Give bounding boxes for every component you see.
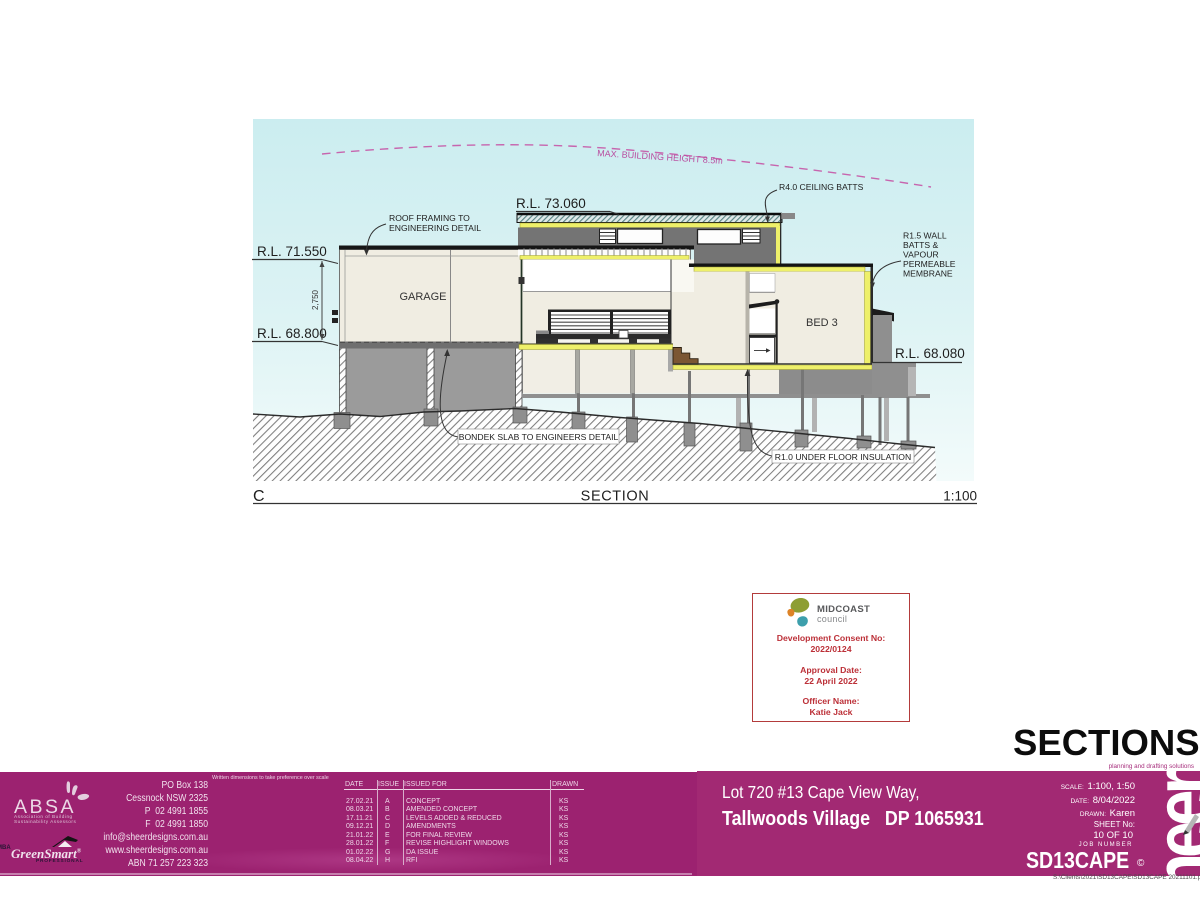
svg-text:R.L. 71.550: R.L. 71.550 — [257, 244, 327, 259]
svg-text:ROOF FRAMING TO: ROOF FRAMING TO — [389, 213, 470, 223]
svg-text:R1.5 WALL: R1.5 WALL — [903, 231, 947, 241]
svg-text:2,750: 2,750 — [311, 289, 320, 310]
svg-text:ENGINEERING DETAIL: ENGINEERING DETAIL — [389, 223, 481, 233]
svg-text:R.L. 68.800: R.L. 68.800 — [257, 326, 327, 341]
svg-text:1:100: 1:100 — [943, 489, 977, 504]
svg-text:SECTION: SECTION — [581, 489, 650, 505]
svg-text:R.L. 73.060: R.L. 73.060 — [516, 196, 586, 211]
svg-text:PERMEABLE: PERMEABLE — [903, 259, 956, 269]
svg-text:MEMBRANE: MEMBRANE — [903, 269, 953, 279]
svg-text:BONDEK SLAB TO ENGINEERS DETAI: BONDEK SLAB TO ENGINEERS DETAIL — [459, 432, 619, 442]
svg-text:BED 3: BED 3 — [806, 317, 838, 329]
svg-text:R4.0 CEILING BATTS: R4.0 CEILING BATTS — [779, 182, 864, 192]
svg-text:C: C — [253, 488, 265, 505]
svg-text:R1.0 UNDER FLOOR INSULATION: R1.0 UNDER FLOOR INSULATION — [775, 452, 911, 462]
svg-text:BATTS &: BATTS & — [903, 240, 938, 250]
svg-text:GARAGE: GARAGE — [399, 291, 446, 303]
svg-text:R.L. 68.080: R.L. 68.080 — [895, 346, 965, 361]
svg-text:VAPOUR: VAPOUR — [903, 250, 939, 260]
